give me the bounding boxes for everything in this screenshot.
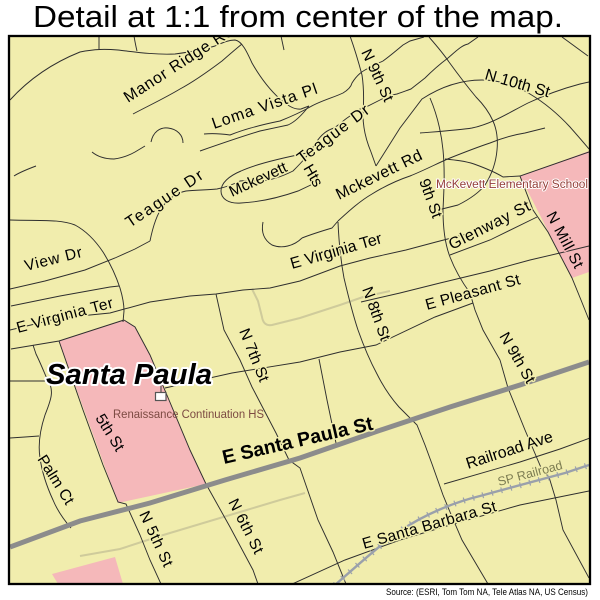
- svg-text:Source: (ESRI, Tom Tom NA, Te: Source: (ESRI, Tom Tom NA, Tele Atlas NA…: [386, 587, 588, 598]
- svg-text:Santa Paula: Santa Paula: [46, 359, 212, 391]
- svg-text:Detail at 1:1 from center of t: Detail at 1:1 from center of the map.: [33, 0, 563, 34]
- svg-text:Renaissance Continuation HS: Renaissance Continuation HS: [113, 407, 264, 421]
- svg-text:McKevett Elementary School: McKevett Elementary School: [436, 177, 588, 191]
